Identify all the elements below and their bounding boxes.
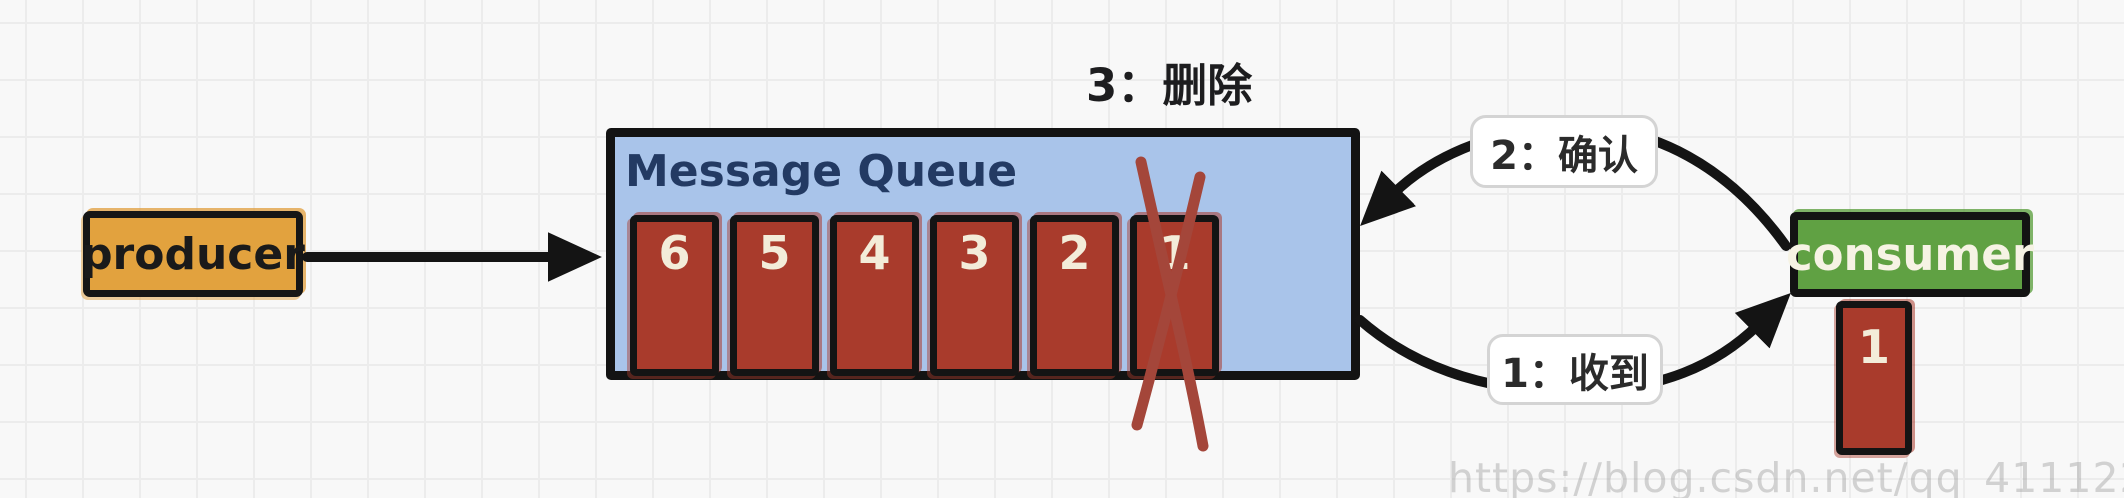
mq-diagram-canvas: producer Message Queue 6 5 4 3 2 1 consu… xyxy=(0,0,2124,498)
watermark: https://blog.csdn.net/qq_41112238 xyxy=(1448,454,2124,498)
queue-message-number: 5 xyxy=(758,228,790,279)
queue-message-slot-5: 5 xyxy=(730,215,819,376)
queue-message-number: 4 xyxy=(858,228,890,279)
queue-message-slot-3: 3 xyxy=(930,215,1019,376)
queue-message-number: 2 xyxy=(1058,228,1090,279)
receive-label: 1：收到 xyxy=(1487,334,1663,405)
queue-message-slot-6: 6 xyxy=(630,215,719,376)
queue-title: Message Queue xyxy=(625,150,1017,194)
consumer-received-message-box: 1 xyxy=(1836,301,1912,455)
queue-message-number: 1 xyxy=(1158,228,1190,279)
queue-message-number: 3 xyxy=(958,228,990,279)
queue-message-slot-2: 2 xyxy=(1030,215,1119,376)
producer-label: producer xyxy=(81,229,305,280)
consumer-label: consumer xyxy=(1786,228,2034,281)
message-queue-box: Message Queue 6 5 4 3 2 1 xyxy=(606,128,1360,380)
queue-message-slot-4: 4 xyxy=(830,215,919,376)
queue-message-number: 6 xyxy=(658,228,690,279)
consumer-message-number: 1 xyxy=(1858,322,1890,373)
delete-annotation: 3：删除 xyxy=(1086,63,1252,108)
queue-message-slot-1: 1 xyxy=(1130,215,1219,376)
producer-box: producer xyxy=(83,211,303,297)
ack-label: 2：确认 xyxy=(1470,115,1658,188)
consumer-box: consumer xyxy=(1790,212,2030,297)
